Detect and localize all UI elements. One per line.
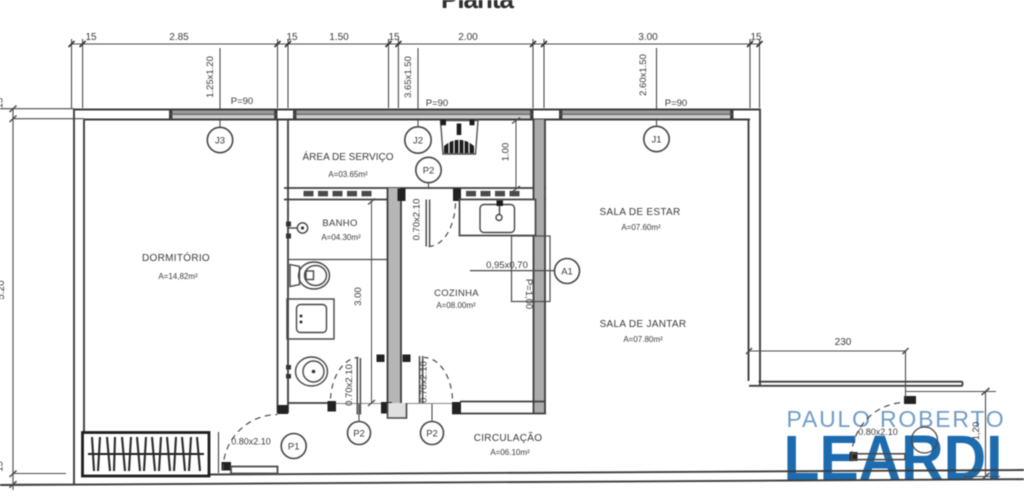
svg-text:P2: P2: [423, 166, 435, 177]
svg-text:0.70x2.10: 0.70x2.10: [419, 361, 430, 403]
svg-text:BANHO: BANHO: [322, 218, 357, 229]
svg-text:P2: P2: [426, 429, 438, 440]
svg-text:230: 230: [835, 337, 852, 348]
svg-text:3.65x1.50: 3.65x1.50: [403, 56, 414, 98]
svg-text:J3: J3: [215, 136, 225, 147]
svg-text:A=07.80m²: A=07.80m²: [623, 335, 663, 344]
svg-text:5.20: 5.20: [0, 280, 7, 300]
svg-text:1.50: 1.50: [329, 32, 349, 43]
svg-text:P=1,00: P=1,00: [523, 279, 534, 309]
svg-text:P=90: P=90: [665, 98, 687, 109]
svg-text:2.85: 2.85: [169, 32, 189, 43]
svg-text:P=90: P=90: [231, 96, 253, 107]
svg-text:0.80x2.10: 0.80x2.10: [858, 427, 898, 437]
svg-text:15: 15: [85, 32, 97, 43]
svg-text:15: 15: [286, 32, 298, 43]
svg-text:A=03.65m²: A=03.65m²: [328, 170, 368, 179]
svg-text:15: 15: [388, 32, 400, 43]
svg-text:Planta: Planta: [441, 0, 515, 14]
svg-text:0.80x2.10: 0.80x2.10: [231, 437, 271, 447]
svg-text:15: 15: [750, 32, 762, 43]
svg-text:SALA DE JANTAR: SALA DE JANTAR: [600, 319, 687, 330]
svg-text:A=14,82m²: A=14,82m²: [158, 272, 198, 281]
svg-text:0,95x0,70: 0,95x0,70: [486, 260, 528, 271]
svg-text:3.00: 3.00: [638, 32, 658, 43]
svg-text:15: 15: [0, 98, 6, 109]
svg-text:A=04.30m²: A=04.30m²: [321, 233, 361, 242]
svg-text:A=06.10m²: A=06.10m²: [490, 448, 530, 457]
svg-text:2.00: 2.00: [458, 32, 478, 43]
svg-text:A=07.60m²: A=07.60m²: [621, 223, 661, 232]
svg-text:J2: J2: [413, 136, 423, 147]
svg-text:0.70x2.10: 0.70x2.10: [412, 199, 423, 241]
svg-text:DORMITÓRIO: DORMITÓRIO: [142, 251, 210, 264]
svg-text:15: 15: [0, 461, 6, 472]
svg-text:J1: J1: [651, 135, 661, 146]
svg-text:CIRCULAÇÃO: CIRCULAÇÃO: [474, 431, 543, 444]
svg-text:2.60x1.50: 2.60x1.50: [638, 54, 649, 96]
svg-text:A1: A1: [561, 267, 573, 278]
svg-text:1.00: 1.00: [501, 143, 512, 162]
svg-text:0.70x2.10: 0.70x2.10: [344, 364, 355, 406]
svg-text:A=08.00m²: A=08.00m²: [436, 301, 476, 310]
svg-text:COZINHA: COZINHA: [434, 288, 479, 299]
svg-text:P2: P2: [353, 429, 365, 440]
svg-text:P=90: P=90: [426, 98, 448, 109]
svg-text:1.25x1.20: 1.25x1.20: [205, 56, 216, 98]
svg-text:1,20: 1,20: [971, 422, 982, 441]
svg-text:ÁREA DE SERVIÇO: ÁREA DE SERVIÇO: [303, 150, 394, 163]
svg-text:SALA DE ESTAR: SALA DE ESTAR: [600, 207, 681, 218]
svg-text:3.00: 3.00: [353, 287, 364, 306]
svg-text:P1: P1: [288, 442, 300, 453]
